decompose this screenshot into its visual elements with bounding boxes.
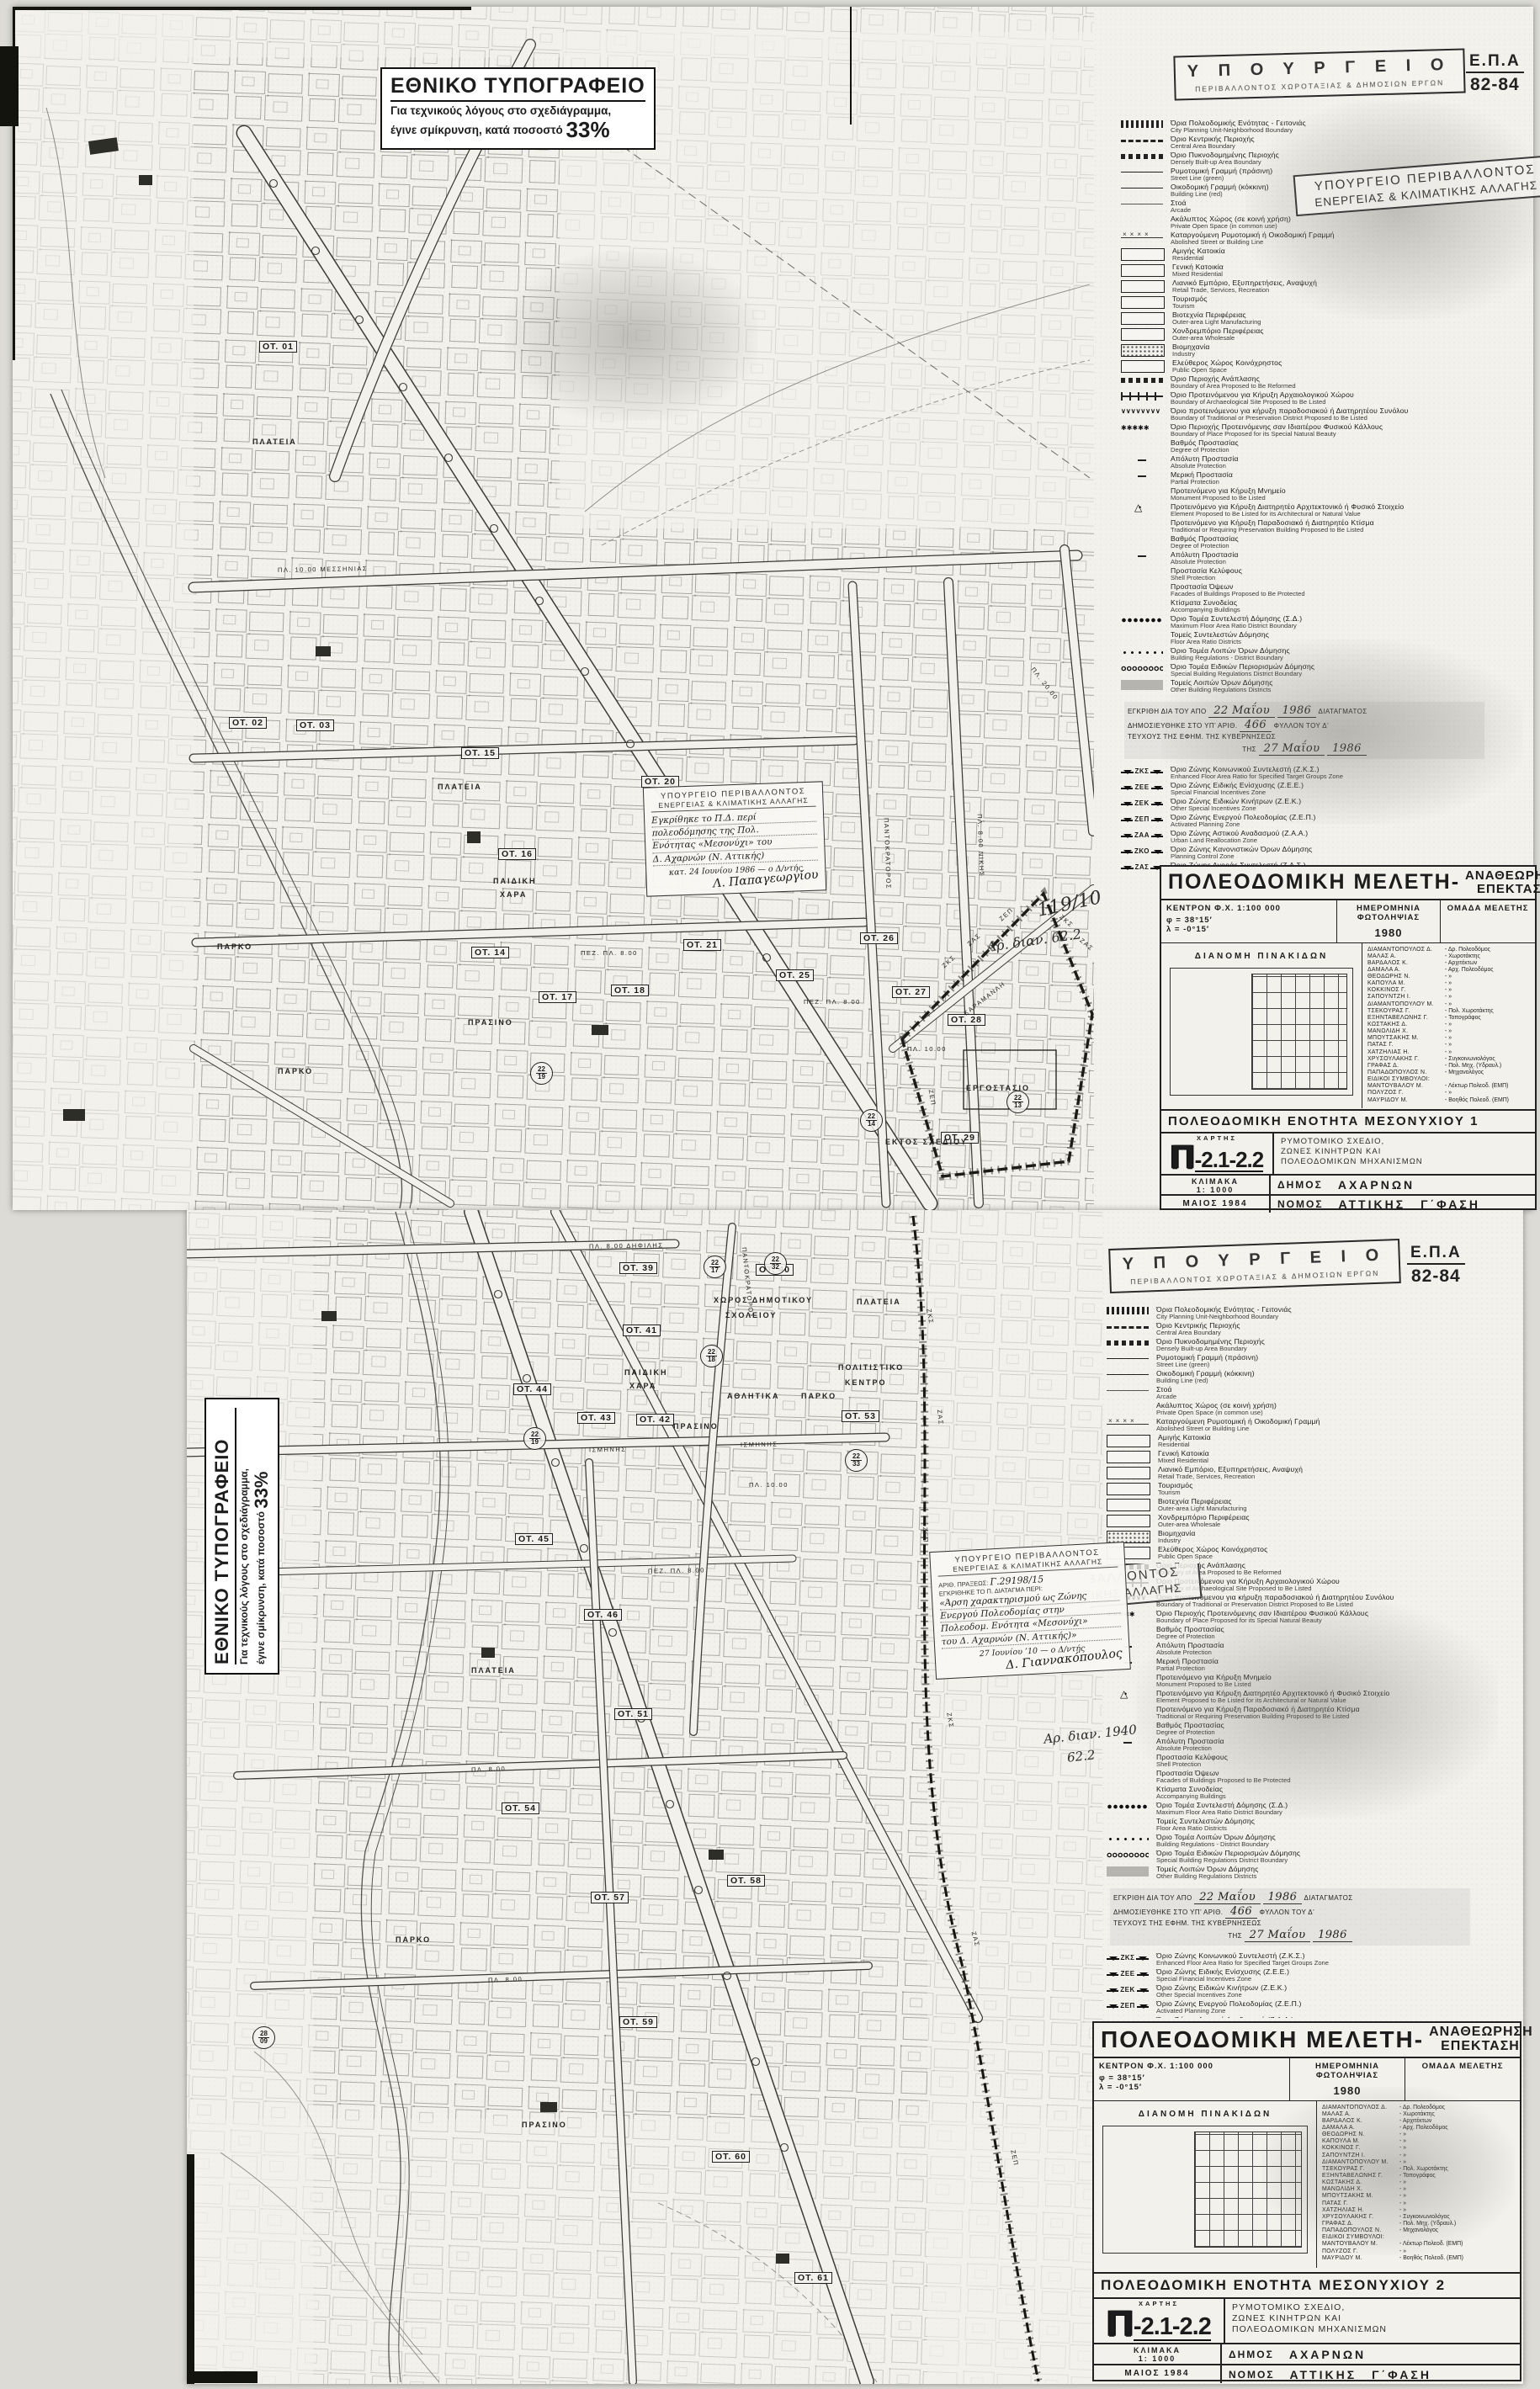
team-member-role: - » [1445,1042,1530,1049]
team-member-name: ΔΙΑΜΑΝΤΟΠΟΥΛΟΥ Μ. [1322,2159,1399,2166]
area-label: ΠΡΑΣΙΝΟ [522,2121,567,2129]
team-member-name: ΠΟΛΥΖΟΣ Γ. [1367,1090,1445,1096]
team-row: ΔΑΜΑΛΑ Α. - Αρχ. Πολεοδόμος [1367,967,1530,974]
printing-office-line1: Για τεχνικούς λόγους στο σχεδιάγραμμα, [390,104,611,117]
legend-row: Προτεινόμενο για Κήρυξη Μνημείο Monument… [1107,1674,1521,1690]
legend-row: Τομείς Συντελεστών Δόμησης Floor Area Ra… [1107,1818,1521,1834]
team-member-role: - » [1399,2159,1515,2166]
scan-artifact [187,2371,258,2383]
legend-english: Degree of Protection [1171,447,1239,454]
legend-symbol [1121,360,1165,373]
team-member-name: ΚΑΠΟΥΛΑ Μ. [1322,2138,1399,2145]
street-label: ΠΛ. 8.00 [471,1765,506,1773]
legend-english: Facades of Buildings Proposed to Be Prot… [1171,591,1305,597]
legend-row: Όριο Τομέα Λοιπών Όρων Δόμησης Building … [1107,1834,1521,1850]
legend-row: Όριο Περιοχής Προτεινόμενης σαν Ιδιαιτέρ… [1121,423,1535,439]
legend-symbol [1107,1691,1149,1701]
legend-row: Βαθμός Προστασίας Degree of Protection [1107,1722,1521,1738]
subject-line2: ΖΩΝΕΣ ΚΙΝΗΤΡΩΝ ΚΑΙ [1281,1147,1528,1157]
zone-row: ΖΕΠ Όριο Ζώνης Ενεργού Πολεοδομίας (Ζ.Ε.… [1121,814,1535,830]
team-member-role: - » [1399,2207,1515,2214]
team-row: ΜΑΛΑΣ Α. - Χωροτάκτης [1322,2111,1515,2118]
legend-symbol [1107,1483,1150,1495]
team-row: ΜΑΝΤΟΥΒΑΛΟΥ Μ. - Λέκτωρ Πολεοδ. (ΕΜΠ) [1322,2241,1515,2248]
legend-row: Απόλυτη Προστασία Absolute Protection [1121,551,1535,567]
zone-row: ΖΕΕ Όριο Ζώνης Ειδικής Ενίσχυσης (Ζ.Ε.Ε.… [1121,782,1535,798]
area-label: ΠΡΑΣΙΝΟ [468,1018,513,1027]
legend-row: Προτεινόμενο για Κήρυξη Διατηρητέο Αρχιτ… [1121,503,1535,519]
team-member-name: ΜΠΟΥΤΣΑΚΗΣ Μ. [1322,2193,1399,2200]
approval-hand-fek: 466 [1240,719,1272,732]
block-label: ΟΤ. 02 [229,717,267,729]
team-row: ΜΑΝΤΟΥΒΑΛΟΥ Μ. - Λέκτωρ Πολεοδ. (ΕΜΠ) [1367,1083,1530,1090]
legend-row: Ακάλυπτος Χώρος (σε κοινή χρήση) Private… [1121,215,1535,231]
legend-english: Special Building Regulations District Bo… [1156,1857,1300,1864]
legend-english: Mixed Residential [1172,271,1224,278]
legend-row: Λιανικό Εμπόριο, Εξυπηρετήσεις, Αναψυχή … [1107,1466,1521,1482]
scale-value: 1: 1000 [1139,2354,1176,2363]
legend-english: Absolute Protection [1156,1649,1224,1656]
team-member-role: - » [1399,2193,1515,2200]
ratio-bottom: 32 [772,1264,779,1271]
legend-row: Προτεινόμενο για Κήρυξη Μνημείο Monument… [1121,487,1535,503]
block-label: ΟΤ. 42 [636,1414,674,1425]
phi: φ = 38°15′ [1166,916,1331,925]
scale-value: 1: 1000 [1197,1186,1235,1194]
ratio-bottom: 13 [1014,1102,1022,1109]
team-row: ΔΙΑΜΑΝΤΟΠΟΥΛΟΥ Μ. - » [1322,2159,1515,2166]
team-member-role: - Τοπογράφος [1399,2173,1515,2179]
team-row: ΣΑΠΟΥΝΤΖΗ Ι. - » [1367,994,1530,1001]
legend-english: Partial Protection [1156,1665,1219,1672]
epa-badge-1: Ε.Π.Α 82-84 [1466,52,1524,95]
dimos-label: ΔΗΜΟΣ [1229,2349,1274,2360]
zone-symbol: ΖΕΕ [1107,1970,1149,1978]
legend-english: Abolished Street or Building Line [1171,239,1335,246]
legend-symbol [1121,296,1165,309]
team-member-name: ΓΡΑΦΑΣ Δ. [1322,2221,1399,2227]
legend-zones: ΖΚΣ Όριο Ζώνης Κοινωνικού Συντελεστή (Ζ.… [1107,1952,1521,2018]
team-member-role: - » [1399,2186,1515,2193]
legend-english: Other Building Regulations Districts [1171,687,1273,693]
legend-symbol [1121,154,1163,159]
area-label: ΧΑΡΑ [500,890,527,899]
legend-row: Όριο Περιοχής Ανάπλασης Boundary of Area… [1121,375,1535,391]
team-member-role: - Δρ. Πολεοδόμος [1445,947,1530,953]
approval-text: ΕΓΚΡΙΘΗ ΔΙΑ ΤΟΥ ΑΠΟ [1113,1894,1192,1902]
block-label: ΟΤ. 61 [794,2272,832,2284]
block-label: ΟΤ. 43 [577,1412,615,1424]
approval-hand-year: 1986 [1277,704,1317,718]
team-member-name: ΚΟΚΚΙΝΟΣ Γ. [1367,987,1445,994]
ratio-bottom: 14 [868,1121,875,1128]
team-row: ΔΙΑΜΑΝΤΟΠΟΥΛΟΥ Μ. - » [1367,1001,1530,1008]
zone-code: ΖΕΕ [1120,1970,1134,1978]
block-label: ΟΤ. 03 [296,719,334,731]
ministry-field-note-1: ΥΠΟΥΡΓΕΙΟ ΠΕΡΙΒΑΛΛΟΝΤΟΣ ΕΝΕΡΓΕΙΑΣ & ΚΛΙΜ… [643,781,826,896]
area-label: ΧΩΡΟΣ ΔΗΜΟΤΙΚΟΥ [714,1296,813,1304]
legend-english: Abolished Street or Building Line [1156,1425,1320,1432]
team-member-name: ΠΑΤΑΣ Γ. [1322,2201,1399,2207]
printing-office-title: ΕΘΝΙΚΟ ΤΥΠΟΓΡΑΦΕΙΟ [211,1408,236,1664]
area-label: ΠΑΡΚΟ [278,1067,313,1075]
block-label: ΟΤ. 21 [683,939,721,951]
team-member-role: - Πολ. Μηχ. (Υδραυλ.) [1399,2221,1515,2227]
legend-english: Residential [1172,255,1225,262]
team-row: ΒΑΡΔΑΛΟΣ Κ. - Αρχιτέκτων [1367,960,1530,967]
photo-date-value: 1980 [1342,926,1435,939]
team-member-role: - » [1399,2201,1515,2207]
study-title3: ΕΠΕΚΤΑΣΗ [1441,2039,1520,2053]
subject-line3: ΠΟΛΕΟΔΟΜΙΚΩΝ ΜΗΧΑΝΙΣΜΩΝ [1232,2324,1513,2335]
printing-office-percent: 33% [251,1472,272,1509]
legend-row: Προστασία Κελύφους Shell Protection [1107,1754,1521,1770]
map-code-glyph: Π [1107,2307,1134,2341]
block-label: ΟΤ. 41 [623,1325,661,1336]
legend-symbol [1121,650,1163,656]
phase-value: Γ΄ΦΑΣΗ [1372,2368,1431,2381]
phase-value: Γ΄ΦΑΣΗ [1421,1197,1480,1211]
team-row: ΓΡΑΦΑΣ Δ. - Πολ. Μηχ. (Υδραυλ.) [1367,1063,1530,1070]
legend-symbol [1107,1515,1150,1527]
approval-hand-year2: 1986 [1327,742,1367,756]
team-member-role: - » [1399,2145,1515,2152]
legend-english: Tourism [1172,303,1208,310]
zone-english: Enhanced Floor Area Ratio for Specified … [1156,1960,1329,1967]
block-label: ΟΤ. 25 [776,969,814,981]
dianomi-title: ΔΙΑΝΟΜΗ ΠΙΝΑΚΙΔΩΝ [1099,2110,1311,2119]
team-member-role: - » [1399,2132,1515,2138]
kentron: ΚΕΝΤΡΟΝ Φ.Χ. 1:100 000 [1166,904,1331,913]
team-row: ΤΣΕΚΟΥΡΑΣ Γ. - Πολ. Χωροτάκτης [1322,2166,1515,2173]
team-member-name: ΘΕΟΔΩΡΗΣ Ν. [1367,974,1445,980]
ratio-circle: 22 32 [764,1252,787,1275]
area-label: ΧΑΡΑ [629,1382,656,1390]
team-member-role: - Χωροτάκτης [1445,953,1530,960]
legend-english: Central Area Boundary [1156,1330,1240,1336]
legend-row: Γενική Κατοικία Mixed Residential [1121,263,1535,279]
street-label: ΠΛ. 10.00 ΜΕΣΣΗΝΙΑΣ [278,565,368,574]
zone-symbol: ΖΚΣ [1121,767,1163,775]
legend-english: Retail Trade, Services, Recreation [1172,287,1317,294]
legend-english: Industry [1172,351,1210,358]
team-row: ΣΑΠΟΥΝΤΖΗ Ι. - » [1322,2153,1515,2159]
team-member-role: - » [1445,974,1530,980]
legend-symbol [1107,1866,1149,1877]
legend-symbol [1107,1451,1150,1463]
team-member-name: ΜΑΝΩΛΙΔΗ Χ. [1322,2186,1399,2193]
legend-row: Βιοτεχνία Περιφέρειας Outer-area Light M… [1107,1498,1521,1514]
block-label: ΟΤ. 46 [584,1609,622,1621]
team-member-role: - Αρχιτέκτων [1399,2118,1515,2125]
legend-row: Βαθμός Προστασίας Degree of Protection [1121,535,1535,551]
approval-hand-date2: 27 Μαΐου [1245,1929,1311,1942]
team-member-name: ΒΑΡΔΑΛΟΣ Κ. [1322,2118,1399,2125]
approval-text: ΔΗΜΟΣΙΕΥΘΗΚΕ ΣΤΟ ΥΠ’ ΑΡΙΘ. [1128,722,1237,730]
team-row: ΠΑΠΑΔΟΠΟΥΛΟΣ Ν. - Μηχανολόγος [1322,2227,1515,2234]
team-title: ΟΜΑΔΑ ΜΕΛΕΤΗΣ [1446,904,1530,913]
team-member-role: - Μηχανολόγος [1399,2227,1515,2234]
ministry-header-1: Υ Π Ο Υ Ρ Γ Ε Ι Ο ΠΕΡΙΒΑΛΛΟΝΤΟΣ ΧΩΡΟΤΑΞΙ… [1173,48,1465,100]
ratio-bottom: 19 [531,1439,539,1446]
legend-english: Floor Area Ratio Districts [1171,639,1269,645]
study-title2: ΑΝΑΘΕΩΡΗΣΗ [1465,868,1540,883]
street-label: ΠΛ. 10.00 [907,1045,947,1053]
zone-english: Special Financial Incentives Zone [1156,1976,1289,1983]
block-label: ΟΤ. 60 [712,2151,750,2163]
photo-date-label1: ΗΜΕΡΟΜΗΝΙΑ [1295,2062,1399,2071]
approval-text: ΕΓΚΡΙΘΗ ΔΙΑ ΤΟΥ ΑΠΟ [1128,708,1207,715]
team-member-name: ΔΑΜΑΛΑ Α. [1367,967,1445,974]
team-member-role: - Πολ. Χωροτάκτης [1399,2166,1515,2173]
team-member-role: - Συγκοινωνιολόγος [1399,2214,1515,2221]
team-member-role: - » [1445,1028,1530,1035]
block-label: ΟΤ. 58 [727,1875,765,1887]
legend-row: Απόλυτη Προστασία Absolute Protection [1107,1642,1521,1658]
team-row: ΔΑΜΑΛΑ Α. - Αρχ. Πολεοδόμος [1322,2125,1515,2132]
street-label: ΖΕΠ [921,1527,930,1544]
team-member-role: - Βοηθός Πολεοδ. (ΕΜΠ) [1445,1097,1530,1104]
legend-row: Τομείς Λοιπών Όρων Δόμησης Other Buildin… [1121,679,1535,695]
legend-zones: ΖΚΣ Όριο Ζώνης Κοινωνικού Συντελεστή (Ζ.… [1121,766,1535,878]
note-body: Εγκρίθηκε το Π.Δ. περί πολεοδόμησης της … [651,810,818,866]
team-row: ΧΑΤΖΗΛΙΑΣ Η. - » [1367,1049,1530,1056]
zone-row: ΖΚΣ Όριο Ζώνης Κοινωνικού Συντελεστή (Ζ.… [1121,766,1535,782]
legend-row: Προστασία Κελύφους Shell Protection [1121,567,1535,583]
legend-symbol [1107,1358,1149,1369]
legend-symbol [1107,1340,1149,1346]
team-member-role: - Λέκτωρ Πολεοδ. (ΕΜΠ) [1445,1083,1530,1090]
scanned-planning-map-page: ΕΘΝΙΚΟ ΤΥΠΟΓΡΑΦΕΙΟ Για τεχνικούς λόγους … [0,0,1540,2389]
legend-row: Λιανικό Εμπόριο, Εξυπηρετήσεις, Αναψυχή … [1121,279,1535,295]
legend-symbol [1123,1742,1132,1754]
approval-hand-date: 22 Μαΐου [1208,704,1275,718]
street-label: ΠΛ. 8.00 ΔΗΦΙΛΗΣ [589,1241,664,1250]
legend-symbol [1107,1374,1149,1385]
legend-english: Street Line (green) [1156,1362,1258,1368]
team-member-role: - Δρ. Πολεοδόμος [1399,2105,1515,2111]
area-label: ΕΚΤΟΣ ΣΧΕΔΙΟΥ [885,1138,968,1146]
team-row: ΓΡΑΦΑΣ Δ. - Πολ. Μηχ. (Υδραυλ.) [1322,2221,1515,2227]
epa-label: Ε.Π.Α [1466,52,1524,73]
legend-english: Building Regulations - District Boundary [1156,1841,1276,1848]
legend-symbol [1121,237,1163,248]
team-member-role: - » [1445,1090,1530,1096]
planning-unit-title: ΠΟΛΕΟΔΟΜΙΚΗ ΕΝΟΤΗΤΑ ΜΕΣΟΝΥΧΙΟΥ 2 [1094,2274,1520,2299]
team-row: ΚΟΚΚΙΝΟΣ Γ. - » [1367,987,1530,994]
legend-row: Όριο Τομέα Συντελεστή Δόμησης (Σ.Δ.) Max… [1107,1802,1521,1818]
dimos-label: ΔΗΜΟΣ [1277,1179,1323,1191]
subject-line1: ΡΥΜΟΤΟΜΙΚΟ ΣΧΕΔΙΟ, [1232,2302,1513,2313]
zone-symbol: ΖΕΚ [1107,1986,1149,1993]
area-label: ΠΡΑΣΙΝΟ [673,1422,719,1431]
team-row: ΚΑΠΟΥΛΑ Μ. - » [1322,2138,1515,2145]
zone-code: ΖΕΠ [1134,815,1150,823]
legend-symbol [1121,617,1163,624]
team-row: ΕΞΗΝΤΑΒΕΛΩΝΗΣ Γ. - Τοπογράφος [1367,1015,1530,1022]
legend-symbol [1121,392,1163,401]
legend-english: Street Line (green) [1171,175,1272,182]
scale-label: ΚΛΙΜΑΚΑ [1192,1177,1239,1186]
area-label: ΠΑΡΚΟ [801,1392,836,1400]
zone-english: Other Special Incentives Zone [1171,805,1301,812]
legend-row: Ελεύθερος Χώρος Κοινόχρηστος Public Open… [1107,1546,1521,1562]
lambda: λ = -0°15′ [1166,925,1331,934]
team-member-name: ΚΩΣΤΑΚΗΣ Δ. [1322,2179,1399,2186]
area-label: ΠΑΙΔΙΚΗ [493,877,536,885]
scan-artifact [13,7,471,10]
dimos-value: ΑΧΑΡΝΩΝ [1289,2348,1366,2361]
legend-sheet-2: Όρια Πολεοδομικής Ενότητας - Γειτονιάς C… [1107,1306,1521,2018]
team-row: ΜΑΝΩΛΙΔΗ Χ. - » [1367,1028,1530,1035]
team-member-role: - » [1445,994,1530,1001]
zone-row: ΖΑΑ Όριο Ζώνης Αστικού Αναδασμού (Ζ.Α.Α.… [1107,2016,1521,2018]
legend-english: Other Building Regulations Districts [1156,1873,1259,1880]
map-code-glyph: Π [1171,1142,1195,1172]
legend-symbol [1121,248,1165,261]
legend-row: Μερική Προστασία Partial Protection [1121,471,1535,487]
nomos-value: ΑΤΤΙΚΗΣ [1339,1197,1406,1211]
team-list: ΔΙΑΜΑΝΤΟΠΟΥΛΟΣ Δ. - Δρ. Πολεοδόμος ΜΑΛΑΣ… [1317,2101,1520,2268]
printing-office-title: ΕΘΝΙΚΟ ΤΥΠΟΓΡΑΦΕΙΟ [390,74,645,102]
team-member-name: ΒΑΡΔΑΛΟΣ Κ. [1367,960,1445,967]
legend-symbol [1107,1424,1149,1435]
legend-row: Όριο Τομέα Συντελεστή Δόμησης (Σ.Δ.) Max… [1121,615,1535,631]
team-member-name: ΤΣΕΚΟΥΡΑΣ Γ. [1367,1008,1445,1015]
legend-english: Outer-area Light Manufacturing [1158,1505,1247,1512]
street-label: ΠΕΖ. ΠΛ. 8.00 [581,949,638,957]
epa-years: 82-84 [1466,75,1524,95]
team-row: ΧΡΥΣΟΥΛΑΚΗΣ Γ. - Συγκοινωνιολόγος [1322,2214,1515,2221]
team-member-name: ΜΑΥΡΙΔΟΥ Μ. [1322,2255,1399,2262]
team-row: ΚΟΚΚΙΝΟΣ Γ. - » [1322,2145,1515,2152]
team-row: ΜΠΟΥΤΣΑΚΗΣ Μ. - » [1322,2193,1515,2200]
legend-symbol [1121,280,1165,293]
epa-years: 82-84 [1407,1266,1465,1287]
legend-symbol [1121,188,1163,199]
zone-row: ΖΕΠ Όριο Ζώνης Ενεργού Πολεοδομίας (Ζ.Ε.… [1107,2000,1521,2016]
zone-symbol: ΖΚΟ [1121,847,1163,855]
team-member-name: ΘΕΟΔΩΡΗΣ Ν. [1322,2132,1399,2138]
zone-row: ΖΑΑ Όριο Ζώνης Αστικού Αναδασμού (Ζ.Α.Α.… [1121,830,1535,846]
legend-row: Όριο Τομέα Ειδικών Περιορισμών Δόμησης S… [1121,663,1535,679]
street-label: ΠΕΖ. ΠΛ. 8.00 [804,998,861,1006]
block-label: ΟΤ. 59 [619,2016,657,2028]
legend-symbol [1121,120,1163,128]
team-member-role: - Πολ. Χωροτάκτης [1445,1008,1530,1015]
title-block-1: ΠΟΛΕΟΔΟΜΙΚΗ ΕΝΟΤΗΤΑ ΜΕΣΟΝΥΧΙΟΥ 1 ΧΑΡΤΗΣ … [1160,1109,1537,1210]
legend-symbol [1121,408,1163,418]
legend-symbol [1121,312,1165,325]
legend-english: Absolute Protection [1171,463,1239,470]
legend-english: Densely Built-up Area Boundary [1156,1346,1265,1352]
area-label: ΠΟΛΙΤΙΣΤΙΚΟ [838,1363,904,1372]
study-title: ΠΟΛΕΟΔΟΜΙΚΗ ΜΕΛΕΤΗ- [1161,867,1462,899]
zone-english: Activated Planning Zone [1156,2008,1302,2015]
zone-code: ΖΕΚ [1134,799,1150,807]
block-label: ΟΤ. 39 [619,1262,657,1274]
zone-english: Urban Land Reallocation Zone [1171,837,1308,844]
legend-sheet-1: Όρια Πολεοδομικής Ενότητας - Γειτονιάς C… [1121,119,1535,878]
team-member-name: ΜΑΝΤΟΥΒΑΛΟΥ Μ. [1322,2241,1399,2248]
legend-english: City Planning Unit-Neighborhood Boundary [1156,1314,1292,1320]
legend-row: Προστασία Όψεων Facades of Buildings Pro… [1107,1770,1521,1786]
legend-symbol [1121,344,1165,357]
legend-symbol [1121,204,1163,215]
printing-office-line2: έγινε σμίκρυνση, κατά ποσοστό [390,124,563,136]
legend-english: Traditional or Requiring Preservation Bu… [1156,1713,1360,1720]
ratio-bottom: 17 [711,1267,719,1274]
scan-artifact [850,7,852,125]
team-member-name: ΜΑΛΑΣ Α. [1322,2111,1399,2118]
ratio-bottom: 19 [538,1074,545,1080]
legend-symbol [1107,1326,1149,1329]
dimos-value: ΑΧΑΡΝΩΝ [1338,1178,1415,1192]
team-member-role: - » [1445,980,1530,987]
block-label: ΟΤ. 57 [591,1892,629,1903]
zone-english: Other Special Incentives Zone [1156,1992,1287,1999]
map-code-number: -2.1-2.2 [1134,2315,1211,2341]
planning-unit-title: ΠΟΛΕΟΔΟΜΙΚΗ ΕΝΟΤΗΤΑ ΜΕΣΟΝΥΧΙΟΥ 1 [1161,1111,1535,1133]
approval-text: ΤΗΣ [1228,1932,1242,1940]
legend-symbol [1121,140,1163,142]
team-member-role: - » [1399,2153,1515,2159]
team-member-role: - » [1445,1049,1530,1056]
legend-row: Μερική Προστασία Partial Protection [1107,1658,1521,1674]
zone-english: Activated Planning Zone [1171,821,1316,828]
legend-english: Boundary of Place Proposed for its Speci… [1171,431,1383,438]
block-label: ΟΤ. 15 [461,747,499,759]
zone-row: ΖΕΕ Όριο Ζώνης Ειδικής Ενίσχυσης (Ζ.Ε.Ε.… [1107,1968,1521,1984]
legend-row: Αμιγής Κατοικία Residential [1121,247,1535,263]
legend-english: Building Regulations - District Boundary [1171,655,1290,661]
legend-english: Element Proposed to Be Listed for its Ar… [1156,1697,1389,1704]
team-row: ΠΟΛΥΖΟΣ Γ. - » [1367,1090,1530,1096]
printing-office-percent: 33% [566,117,610,142]
zone-code: ΖΕΚ [1120,1986,1135,1993]
nomos-label: ΝΟΜΟΣ [1229,2369,1275,2381]
team-member-name: ΕΞΗΝΤΑΒΕΛΩΝΗΣ Γ. [1322,2173,1399,2179]
street-label: ΠΛ. 10.00 [749,1481,789,1489]
zone-english: Special Financial Incentives Zone [1171,789,1304,796]
team-member-name: ΜΑΥΡΙΔΟΥ Μ. [1367,1097,1445,1104]
street-label: ΙΣΜΗΝΗΣ [741,1441,778,1449]
block-label: ΟΤ. 53 [842,1410,879,1422]
ratio-circle: 22 13 [1006,1091,1029,1113]
street-label: ΠΕΖ. ΠΛ. 8.00 [648,1566,705,1574]
team-member-name: ΠΑΤΑΣ Γ. [1367,1042,1445,1049]
zone-row: ΖΕΚ Όριο Ζώνης Ειδικών Κινήτρων (Ζ.Ε.Κ.)… [1107,1984,1521,2000]
legend-symbol [1121,680,1163,690]
legend-row: Ακάλυπτος Χώρος (σε κοινή χρήση) Private… [1107,1402,1521,1418]
approval-hand-year: 1986 [1263,1891,1303,1904]
date-value: ΜΑΙΟΣ 1984 [1094,2365,1222,2383]
approval-hand-date2: 27 Μαΐου [1259,742,1325,756]
area-label: ΠΑΡΚΟ [217,942,252,951]
legend-row: Όριο προτεινόμενου για κήρυξη παραδοσιακ… [1121,407,1535,423]
ratio-circle: 22 17 [704,1256,726,1278]
team-member-name: ΣΑΠΟΥΝΤΖΗ Ι. [1322,2153,1399,2159]
subject-line3: ΠΟΛΕΟΔΟΜΙΚΩΝ ΜΗΧΑΝΙΣΜΩΝ [1281,1157,1528,1167]
zone-code: ΖΚΣ [1135,767,1150,775]
approval-hand-fek: 466 [1225,1905,1257,1919]
zone-symbol: ΖΕΕ [1121,783,1163,791]
team-member-role: - » [1445,1035,1530,1042]
legend-symbol [1107,1803,1149,1810]
legend-row: Χονδρεμπόριο Περιφέρειας Outer-area Whol… [1121,327,1535,343]
team-member-name: ΣΑΠΟΥΝΤΖΗ Ι. [1367,994,1445,1001]
block-label: ΟΤ. 18 [611,985,649,996]
